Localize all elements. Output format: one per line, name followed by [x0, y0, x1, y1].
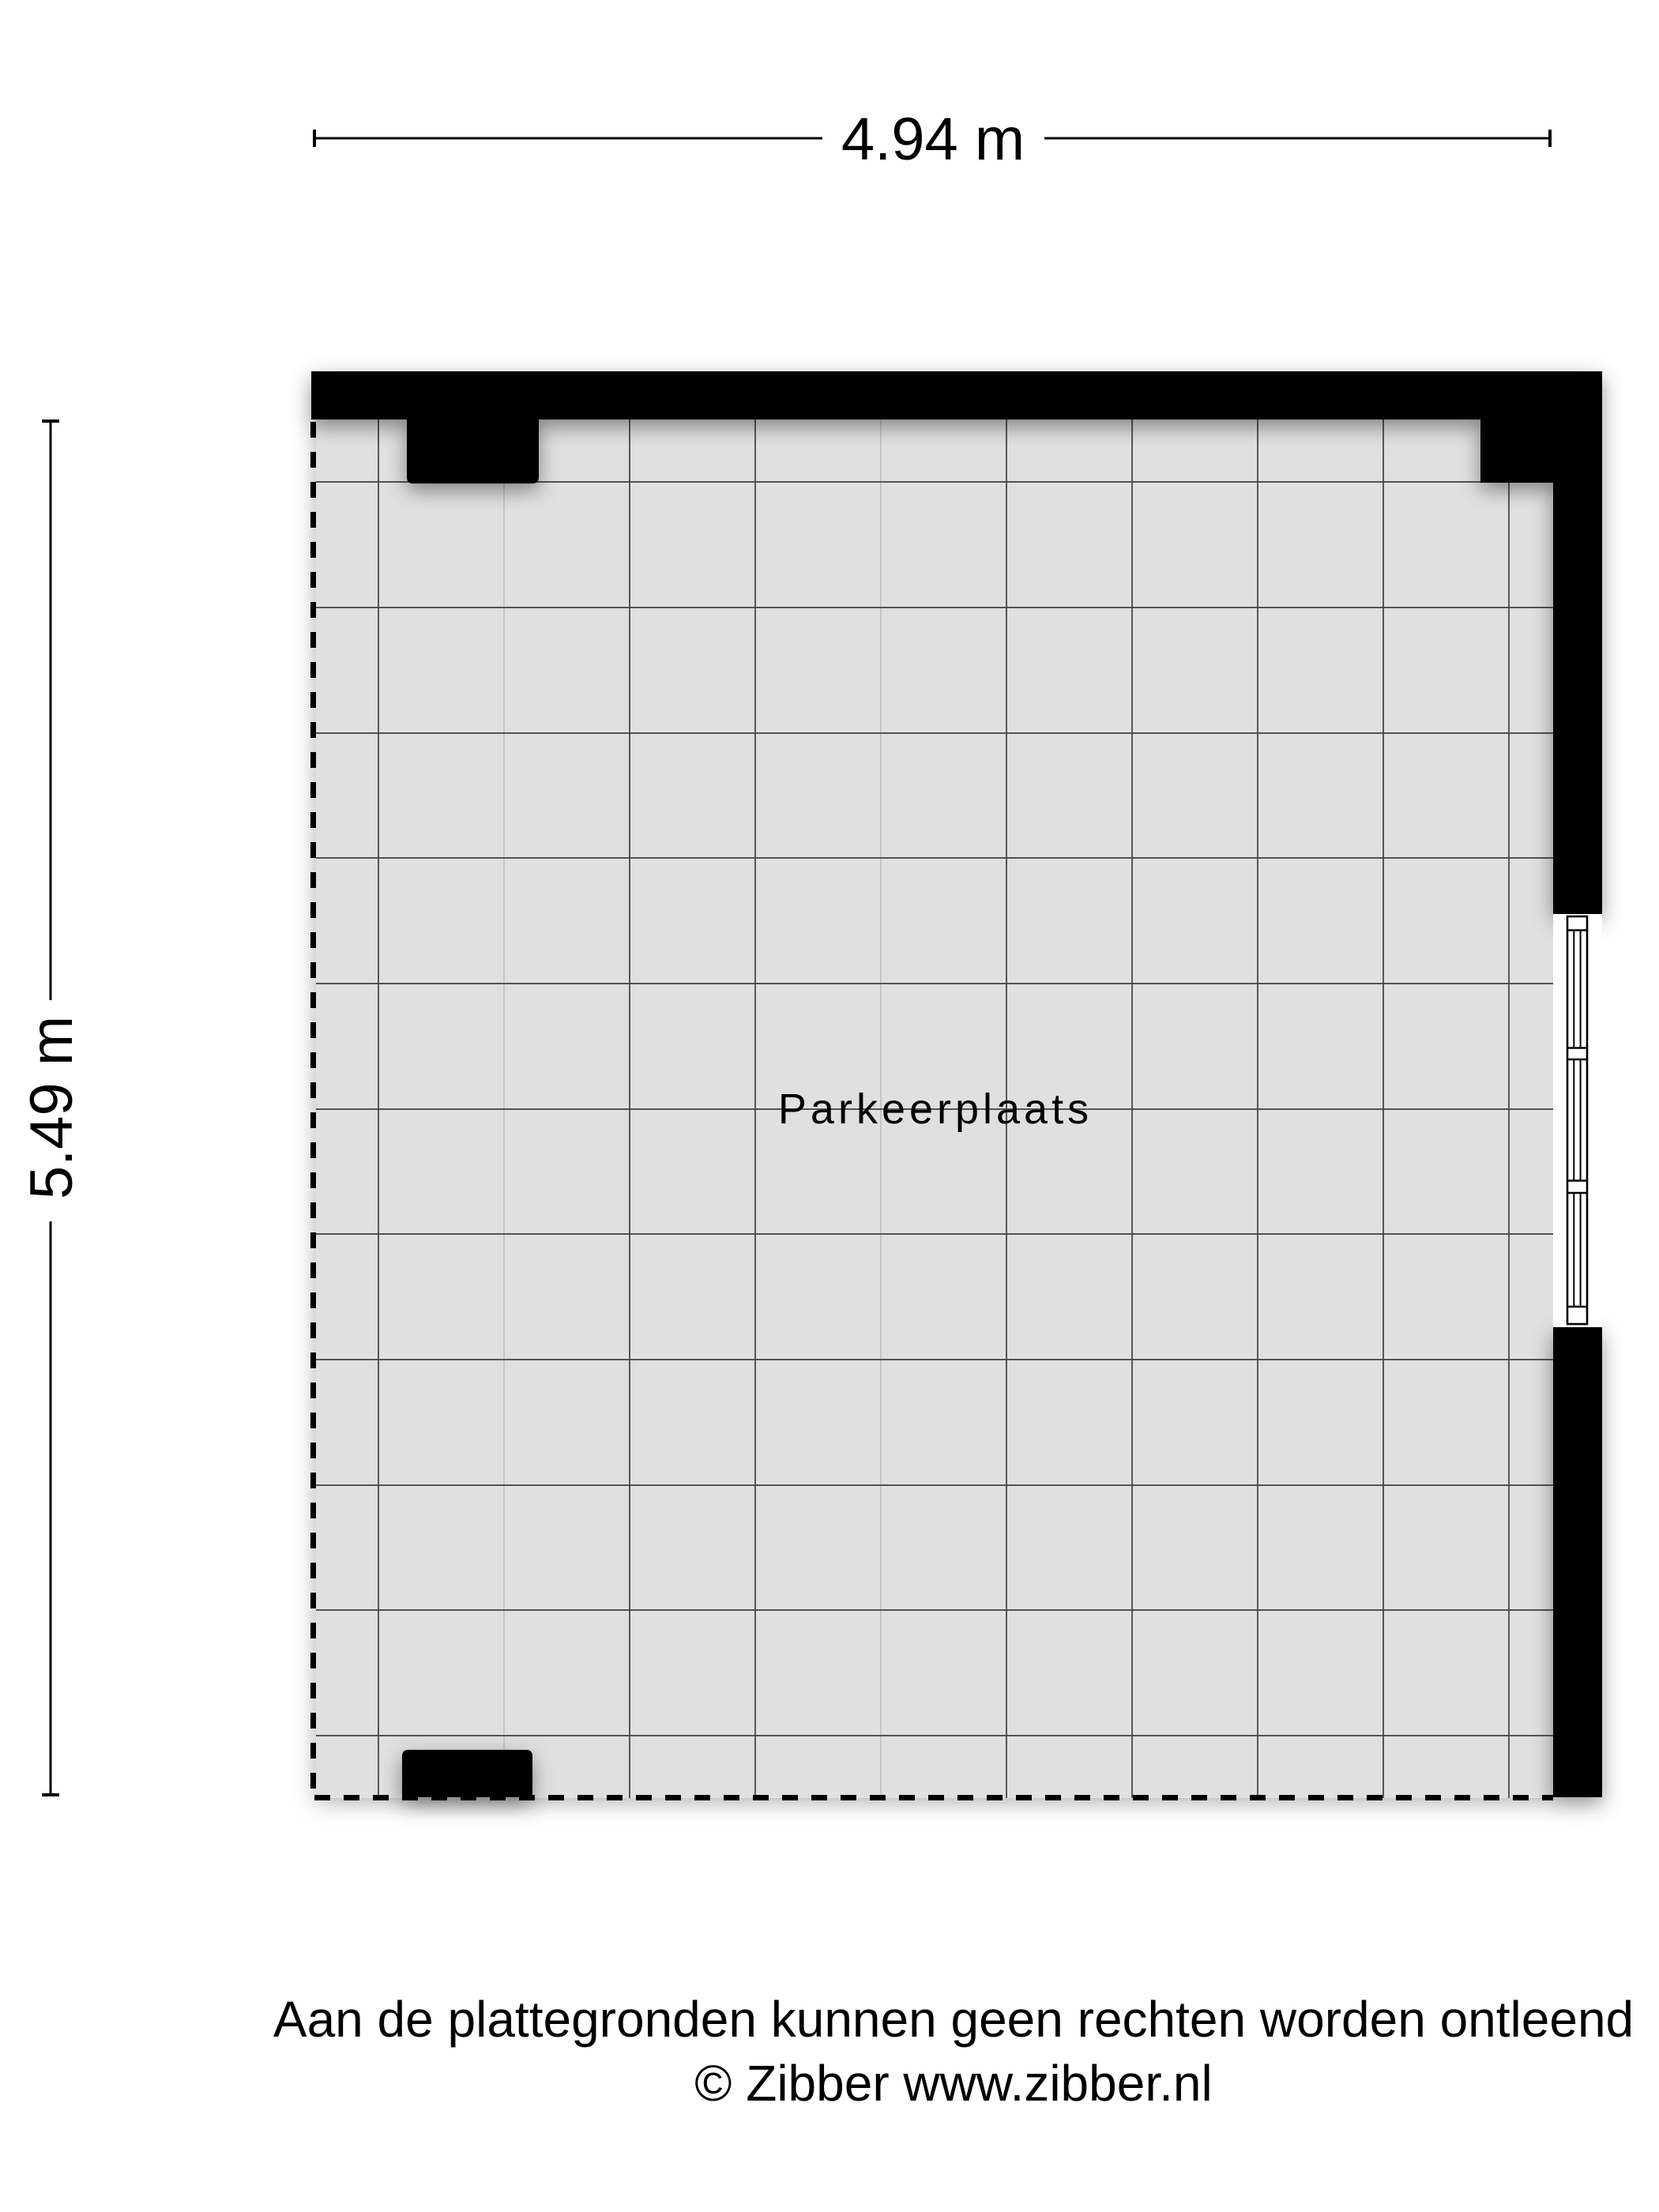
svg-text:Aan de plattegronden kunnen ge: Aan de plattegronden kunnen geen rechten…: [273, 1991, 1634, 2048]
svg-text:5.49 m: 5.49 m: [18, 1016, 85, 1199]
svg-text:4.94 m: 4.94 m: [841, 106, 1025, 173]
svg-text:© Zibber www.zibber.nl: © Zibber www.zibber.nl: [694, 2055, 1212, 2112]
svg-text:Parkeerplaats: Parkeerplaats: [778, 1085, 1093, 1133]
